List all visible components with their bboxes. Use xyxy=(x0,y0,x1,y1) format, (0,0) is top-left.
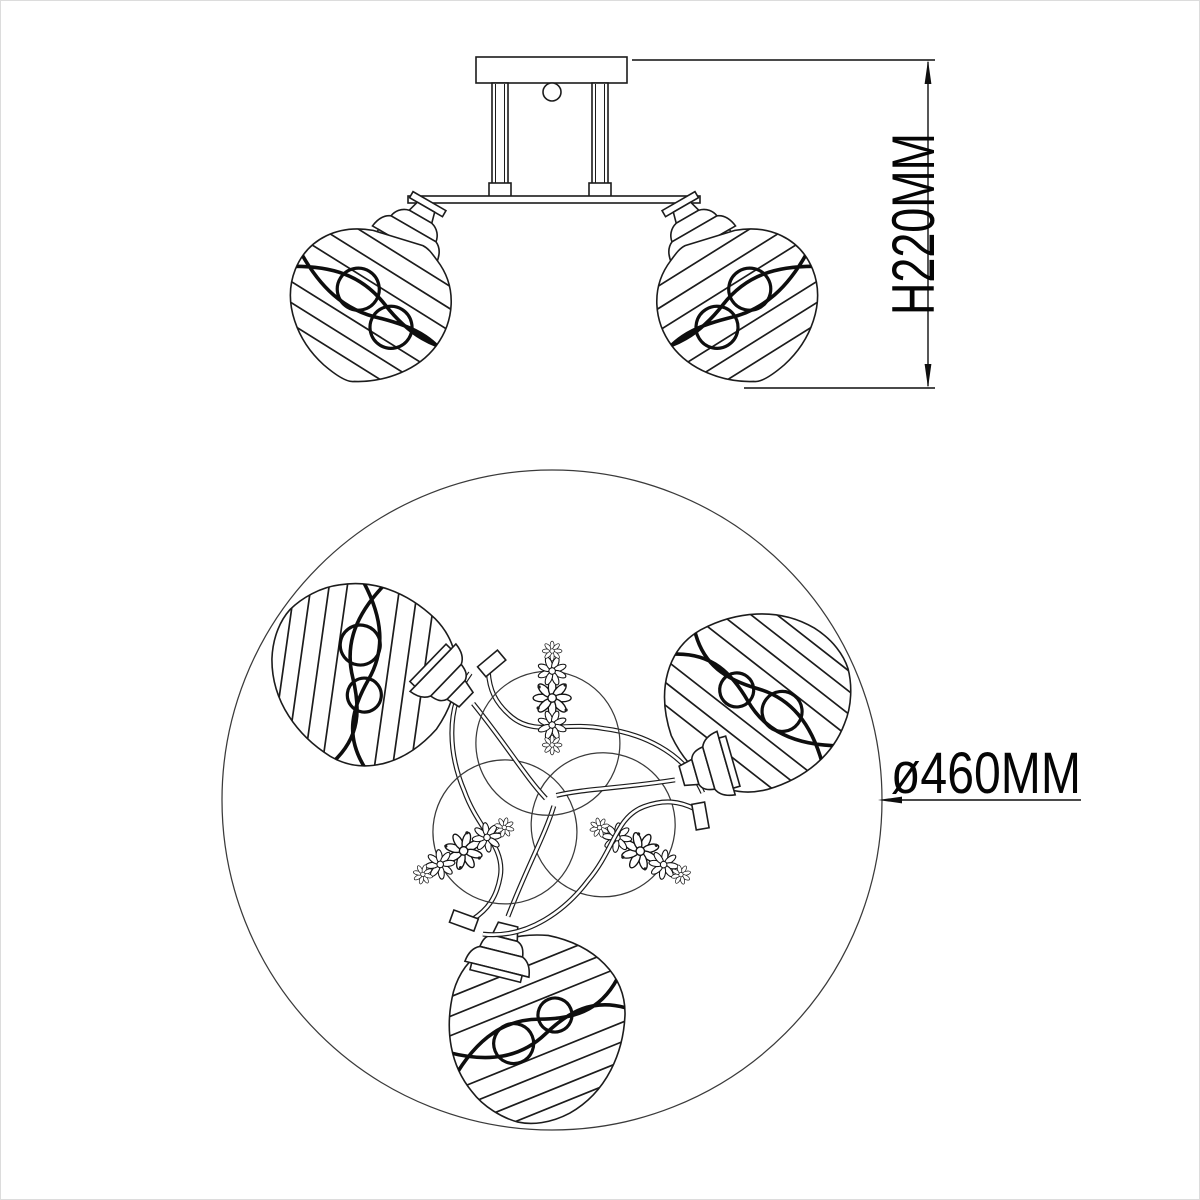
arrow-down-icon xyxy=(925,364,932,388)
height-dimension-label: H220MM xyxy=(880,133,947,315)
side-view xyxy=(241,57,867,422)
plan-view xyxy=(168,470,935,1165)
arrow-up-icon xyxy=(925,60,932,84)
diameter-dimension-label: ø460MM xyxy=(891,741,1081,806)
support-post-right xyxy=(592,83,608,184)
side-lamp-left xyxy=(241,183,512,423)
ceiling-plate xyxy=(476,57,627,83)
plan-lamp-left xyxy=(168,492,731,992)
plan-lamp-right xyxy=(372,499,934,980)
post-collar-right xyxy=(589,183,611,197)
mounting-knob xyxy=(543,83,561,101)
technical-drawing-canvas: H220MM ø460MM xyxy=(0,0,1200,1200)
drawing-page: H220MM ø460MM xyxy=(0,0,1200,1200)
side-lamp-right xyxy=(596,183,867,423)
cross-bar xyxy=(408,196,700,203)
diameter-dimension: ø460MM xyxy=(878,741,1081,806)
post-collar-left xyxy=(489,183,511,197)
support-post-left xyxy=(492,83,508,184)
